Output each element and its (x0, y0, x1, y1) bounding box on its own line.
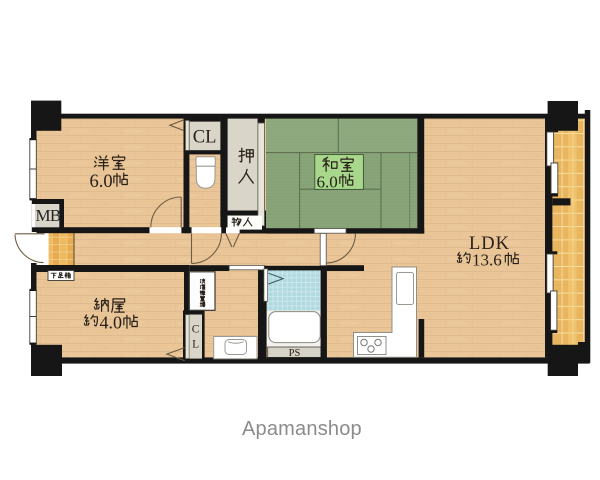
svg-text:L: L (192, 339, 199, 351)
svg-text:PS: PS (289, 348, 301, 359)
svg-text:6.0: 6.0 (317, 173, 338, 192)
svg-text:CL: CL (193, 128, 217, 148)
svg-text:6.0: 6.0 (90, 172, 113, 192)
svg-text:4.0: 4.0 (100, 313, 123, 333)
svg-text:13.6: 13.6 (472, 251, 502, 270)
svg-text:C: C (192, 324, 200, 336)
svg-text:Apamanshop: Apamanshop (242, 418, 362, 440)
svg-text:MB: MB (36, 206, 61, 225)
